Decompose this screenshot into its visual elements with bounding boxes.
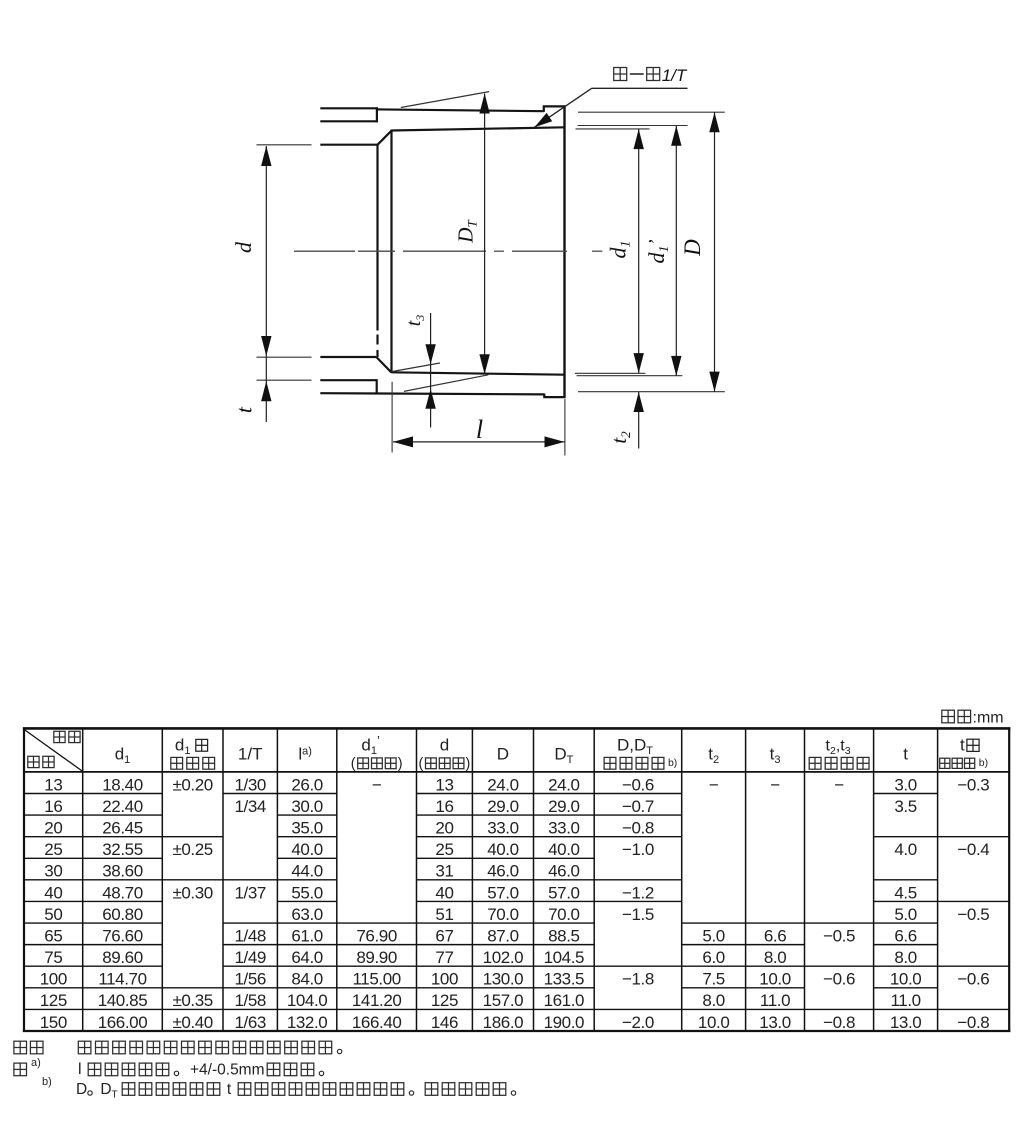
svg-text:l: l [78,1061,82,1078]
svg-text:89.60: 89.60 [102,948,143,967]
svg-text:161.0: 161.0 [544,991,585,1010]
svg-text:1/58: 1/58 [234,991,266,1010]
svg-text:d: d [440,735,449,754]
svg-text:100: 100 [431,970,458,989]
svg-text:11.0: 11.0 [760,991,790,1010]
svg-text:±0.35: ±0.35 [172,991,212,1010]
svg-text:−: − [770,775,780,794]
svg-text:(: ( [351,756,356,772]
svg-text:166.00: 166.00 [98,1013,148,1032]
svg-text:t: t [227,1081,232,1098]
svg-text:10.0: 10.0 [698,1013,730,1032]
svg-text:−: − [709,775,719,794]
svg-text:40.0: 40.0 [291,840,323,859]
svg-text:40.0: 40.0 [487,840,519,859]
svg-text:−1.5: −1.5 [622,905,654,924]
svg-text:−0.8: −0.8 [823,1013,855,1032]
svg-text:−0.5: −0.5 [823,926,855,945]
svg-text:b): b) [42,1076,52,1088]
svg-text:t: t [903,744,908,763]
svg-text:1/30: 1/30 [234,775,266,794]
svg-text:d: d [231,241,256,253]
svg-text:104.5: 104.5 [544,948,585,967]
svg-text:57.0: 57.0 [548,883,580,902]
svg-text:−0.6: −0.6 [823,970,855,989]
svg-text:40: 40 [44,883,62,902]
svg-text:−1.8: −1.8 [622,970,654,989]
svg-text:6.0: 6.0 [702,948,724,967]
svg-text:13.0: 13.0 [759,1013,791,1032]
svg-text:): ) [398,756,403,772]
svg-text:26.45: 26.45 [102,818,143,837]
svg-text:65: 65 [44,926,62,945]
svg-text:3.0: 3.0 [894,775,916,794]
svg-text:D: D [76,1081,87,1098]
svg-text:(: ( [419,756,424,772]
svg-text:115.00: 115.00 [352,970,400,989]
svg-text:+4/-0.5mm: +4/-0.5mm [190,1061,265,1078]
svg-text:25: 25 [44,840,62,859]
svg-text:70.0: 70.0 [548,905,580,924]
svg-text:87.0: 87.0 [487,926,519,945]
svg-text:D: D [680,239,705,257]
svg-text:−0.5: −0.5 [957,905,989,924]
svg-text:1/37: 1/37 [234,883,266,902]
svg-text:): ) [466,756,471,772]
svg-text:−1.2: −1.2 [622,883,654,902]
svg-text:33.0: 33.0 [548,818,580,837]
svg-text:10.0: 10.0 [759,970,791,989]
svg-text:57.0: 57.0 [487,883,519,902]
svg-text:89.90: 89.90 [356,948,397,967]
svg-text:30.0: 30.0 [291,797,323,816]
svg-text:a): a) [31,1057,41,1069]
svg-text:46.0: 46.0 [487,862,519,881]
svg-text:6.6: 6.6 [894,926,916,945]
svg-text:104.0: 104.0 [287,991,328,1010]
svg-text:30: 30 [44,862,62,881]
svg-text::mm: :mm [973,710,1004,727]
svg-text:16: 16 [44,797,62,816]
svg-text:±0.30: ±0.30 [172,883,212,902]
svg-text:±0.20: ±0.20 [172,775,212,794]
svg-text:77: 77 [435,948,453,967]
svg-text:11.0: 11.0 [890,991,920,1010]
svg-text:1/34: 1/34 [234,797,266,816]
svg-text:8.0: 8.0 [702,991,724,1010]
svg-text:6.6: 6.6 [764,926,786,945]
svg-text:1/49: 1/49 [234,948,266,967]
svg-text:−0.6: −0.6 [622,775,654,794]
svg-text:50: 50 [44,905,62,924]
svg-text:D: D [497,744,509,763]
svg-text:5.0: 5.0 [702,926,724,945]
svg-text:4.0: 4.0 [894,840,916,859]
svg-text:−1.0: −1.0 [622,840,654,859]
svg-text:67: 67 [435,926,453,945]
svg-text:31: 31 [435,862,453,881]
svg-text:1/48: 1/48 [234,926,266,945]
svg-text:20: 20 [44,818,62,837]
svg-text:7.5: 7.5 [702,970,724,989]
svg-text:18.40: 18.40 [102,775,143,794]
svg-text:125: 125 [431,991,458,1010]
svg-text:−0.4: −0.4 [957,840,989,859]
svg-text:13: 13 [44,775,62,794]
svg-text:22.40: 22.40 [102,797,143,816]
svg-text:−0.3: −0.3 [957,775,989,794]
svg-text:29.0: 29.0 [548,797,580,816]
svg-text:60.80: 60.80 [102,905,143,924]
svg-text:35.0: 35.0 [291,818,323,837]
svg-text:61.0: 61.0 [291,926,323,945]
svg-text:±0.40: ±0.40 [172,1013,212,1032]
svg-text:25: 25 [435,840,453,859]
svg-text:157.0: 157.0 [483,991,524,1010]
svg-text:55.0: 55.0 [291,883,323,902]
svg-text:33.0: 33.0 [487,818,519,837]
svg-text:132.0: 132.0 [287,1013,328,1032]
svg-text:24.0: 24.0 [487,775,519,794]
svg-text:140.85: 140.85 [98,991,148,1010]
svg-text:1/56: 1/56 [234,970,266,989]
svg-text:l: l [476,415,483,444]
svg-text:8.0: 8.0 [764,948,786,967]
svg-text:130.0: 130.0 [483,970,524,989]
svg-text:75: 75 [44,948,62,967]
svg-text:±0.25: ±0.25 [172,840,212,859]
svg-text:1/T: 1/T [662,66,688,85]
svg-text:4.5: 4.5 [894,883,916,902]
svg-text:13: 13 [435,775,453,794]
svg-text:16: 16 [435,797,453,816]
svg-text:63.0: 63.0 [291,905,323,924]
svg-text:186.0: 186.0 [483,1013,524,1032]
svg-text:51: 51 [435,905,453,924]
svg-text:t: t [960,735,965,754]
svg-text:84.0: 84.0 [291,970,323,989]
svg-text:32.55: 32.55 [102,840,143,859]
svg-text:8.0: 8.0 [894,948,916,967]
svg-text:40.0: 40.0 [548,840,580,859]
svg-text:−2.0: −2.0 [622,1013,654,1032]
svg-text:190.0: 190.0 [544,1013,585,1032]
svg-text:141.20: 141.20 [352,991,402,1010]
svg-text:b): b) [979,757,988,769]
svg-text:3.5: 3.5 [894,797,916,816]
svg-text:t: t [232,406,257,413]
svg-text:46.0: 46.0 [548,862,580,881]
svg-text:b): b) [668,757,677,769]
svg-text:125: 125 [40,991,67,1010]
svg-text:−: − [834,775,844,794]
svg-text:64.0: 64.0 [291,948,323,967]
svg-text:133.5: 133.5 [544,970,585,989]
svg-text:76.60: 76.60 [102,926,143,945]
svg-text:114.70: 114.70 [98,970,146,989]
svg-text:1/63: 1/63 [234,1013,266,1032]
svg-text:100: 100 [40,970,67,989]
svg-text:166.40: 166.40 [352,1013,402,1032]
svg-text:−0.7: −0.7 [622,797,654,816]
svg-text:−0.8: −0.8 [957,1013,989,1032]
svg-text:1/T: 1/T [238,744,263,763]
svg-text:26.0: 26.0 [291,775,323,794]
svg-text:44.0: 44.0 [291,862,323,881]
svg-text:−: − [372,775,382,794]
svg-text:10.0: 10.0 [890,970,922,989]
svg-text:48.70: 48.70 [102,883,143,902]
svg-text:13.0: 13.0 [890,1013,922,1032]
svg-text:29.0: 29.0 [487,797,519,816]
svg-text:38.60: 38.60 [102,862,143,881]
svg-text:150: 150 [40,1013,67,1032]
svg-text:70.0: 70.0 [487,905,519,924]
svg-text:24.0: 24.0 [548,775,580,794]
svg-text:102.0: 102.0 [483,948,524,967]
svg-text:40: 40 [435,883,453,902]
svg-text:−0.6: −0.6 [957,970,989,989]
svg-text:−0.8: −0.8 [622,818,654,837]
svg-text:5.0: 5.0 [894,905,916,924]
svg-text:146: 146 [431,1013,458,1032]
svg-text:88.5: 88.5 [548,926,580,945]
svg-text:76.90: 76.90 [356,926,397,945]
svg-text:20: 20 [435,818,453,837]
